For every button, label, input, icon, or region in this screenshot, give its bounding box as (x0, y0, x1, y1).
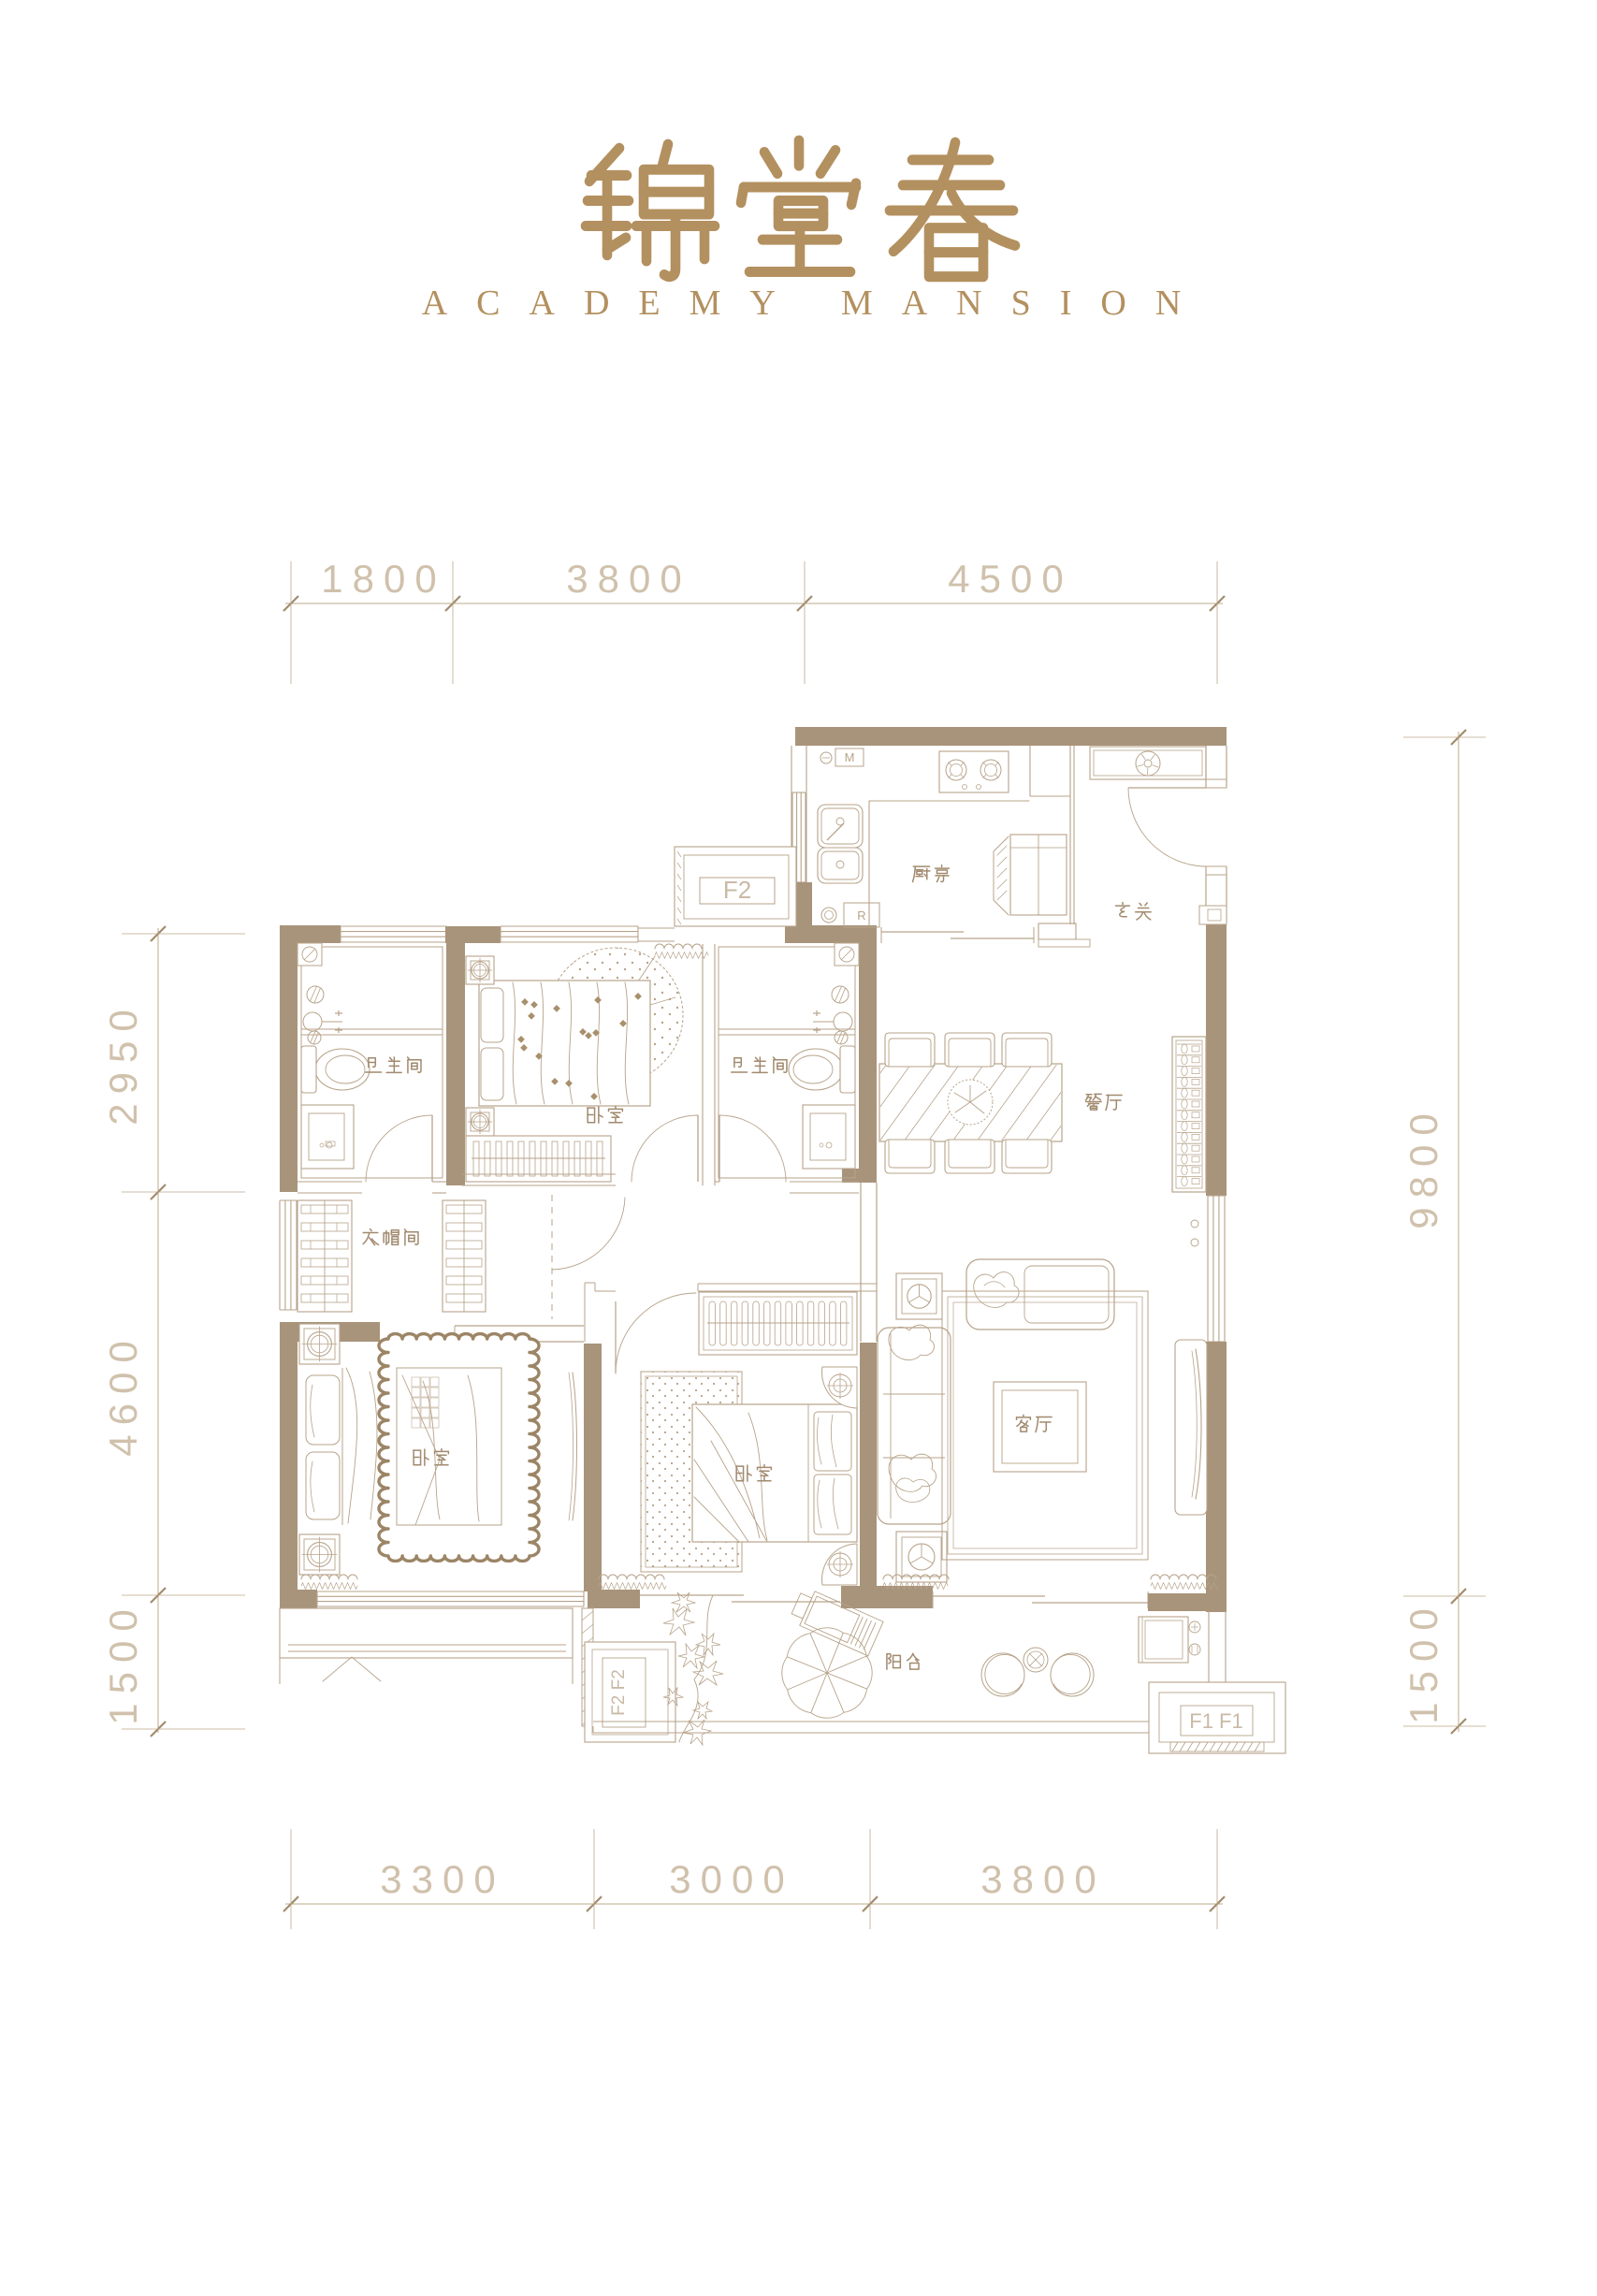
svg-text:1800: 1800 (321, 557, 445, 601)
svg-text:R: R (857, 908, 865, 923)
svg-text:4600: 4600 (101, 1331, 145, 1456)
svg-text:M: M (845, 750, 855, 764)
svg-text:F1 F1: F1 F1 (1189, 1709, 1242, 1733)
svg-text:3800: 3800 (566, 557, 690, 601)
svg-text:4500: 4500 (948, 557, 1072, 601)
svg-text:F2: F2 (723, 876, 751, 904)
svg-text:2950: 2950 (101, 1000, 145, 1125)
svg-text:3000: 3000 (669, 1857, 793, 1901)
svg-text:1500: 1500 (1401, 1599, 1445, 1723)
svg-text:9800: 9800 (1401, 1104, 1445, 1228)
svg-text:F2 F2: F2 F2 (609, 1669, 629, 1716)
svg-text:3300: 3300 (380, 1857, 504, 1901)
svg-text:ACADEMY MANSION: ACADEMY MANSION (422, 283, 1211, 323)
svg-text:1500: 1500 (101, 1600, 145, 1724)
svg-text:3800: 3800 (980, 1857, 1105, 1901)
